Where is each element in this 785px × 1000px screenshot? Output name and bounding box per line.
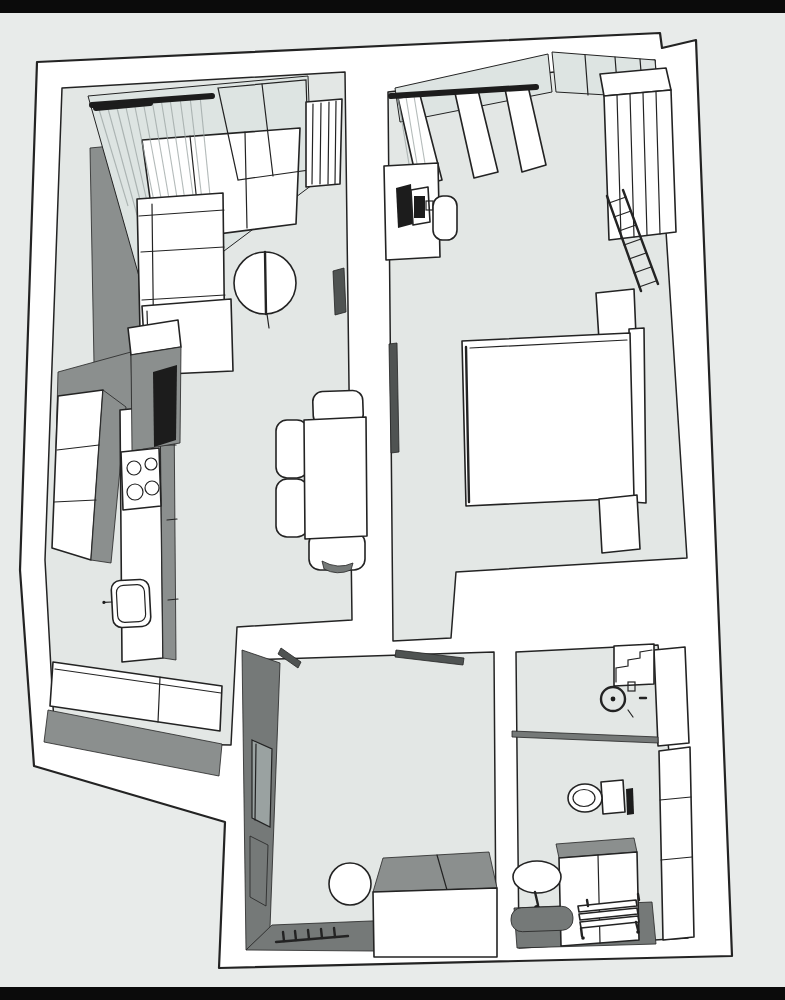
- wall-cabinet-bottom: [659, 747, 694, 940]
- dining-table: [304, 417, 367, 539]
- floor-plan-image: [0, 0, 785, 1000]
- laptop-keys: [414, 196, 425, 218]
- bedroom-door-leaf: [389, 343, 399, 453]
- desk-chair: [433, 196, 457, 240]
- cooktop-icon: [121, 448, 161, 510]
- living-door-leaf: [333, 268, 346, 315]
- mattress: [462, 333, 634, 506]
- dining-chair-left-2: [276, 479, 308, 537]
- wall-panel: [250, 836, 268, 906]
- radiator: [306, 99, 342, 187]
- top-letterbox-bar: [0, 0, 785, 13]
- sliding-wardrobe: [600, 68, 676, 240]
- bath-mat: [511, 906, 574, 932]
- dining-chair-left-1: [276, 420, 308, 478]
- cabinet-top: [373, 852, 497, 892]
- round-pouf: [329, 863, 371, 905]
- cistern: [601, 780, 625, 814]
- shoe-cabinet: [373, 852, 497, 957]
- cabinet-front: [373, 888, 497, 957]
- floor-plan-svg: [0, 0, 785, 1000]
- bottom-letterbox-bar: [0, 987, 785, 1000]
- oven-door: [153, 365, 177, 447]
- wash-basin-icon: [513, 861, 561, 893]
- towel-radiator: [626, 788, 634, 815]
- wall-cabinet-top: [654, 647, 689, 746]
- nightstand-bottom: [599, 495, 640, 553]
